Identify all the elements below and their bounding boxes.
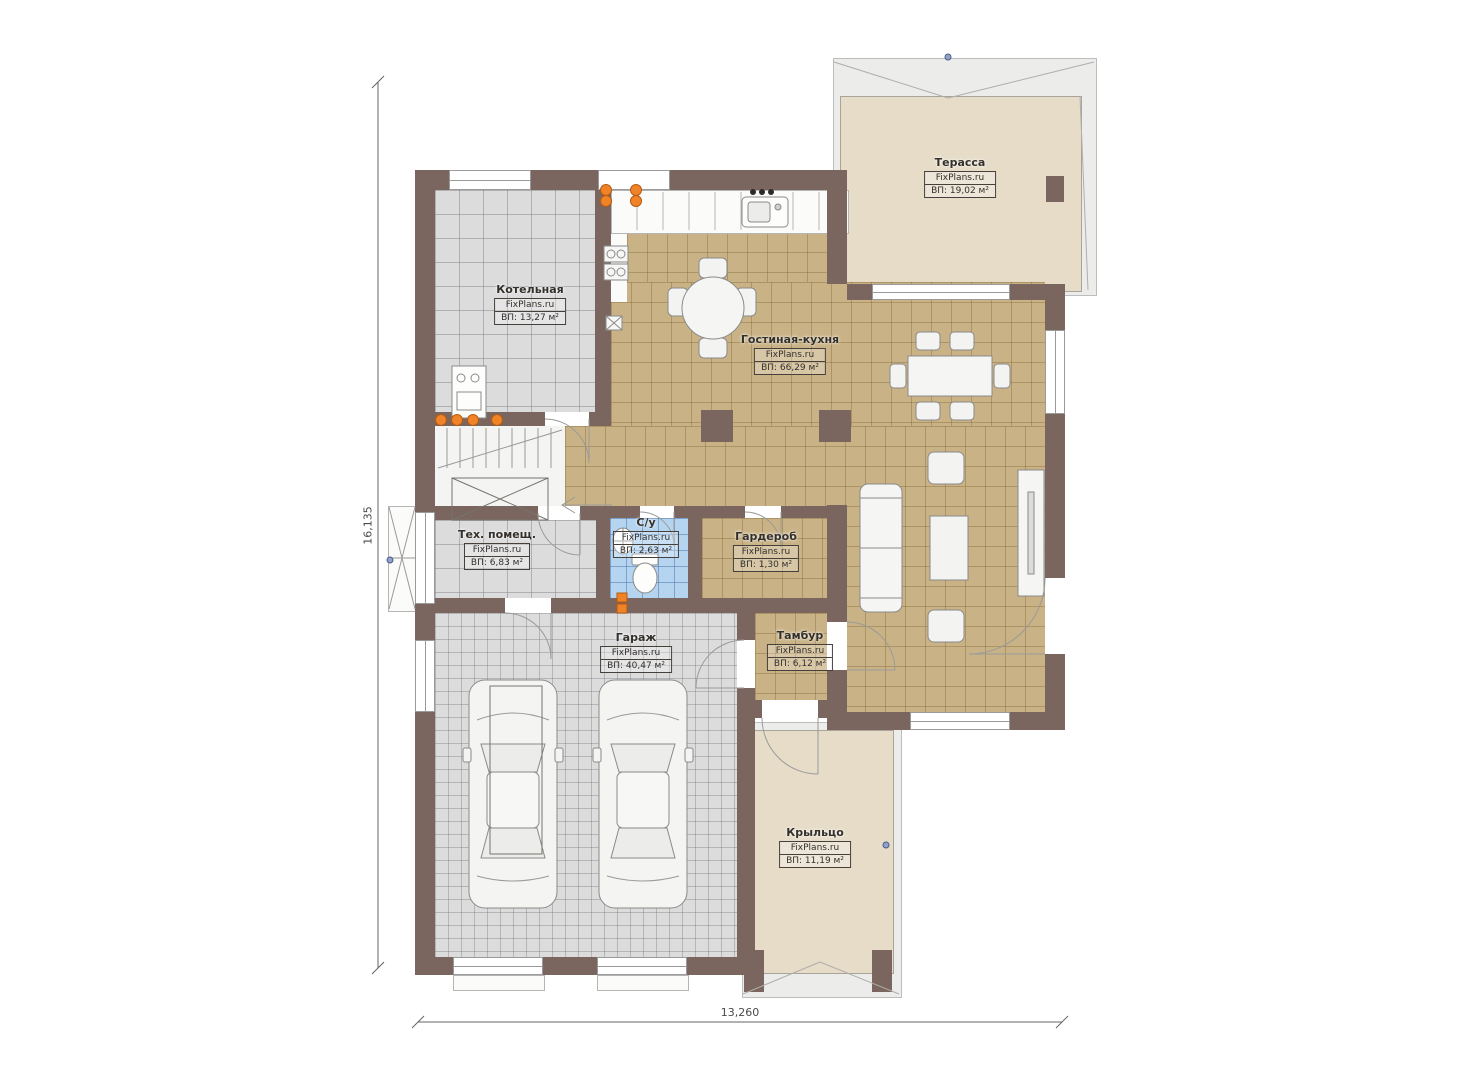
porch-post-right [872,950,892,992]
watermark-fixplans: FixPlans.ru [925,172,995,184]
watermark-fixplans: FixPlans.ru [601,647,671,659]
watermark-fixplans: FixPlans.ru [768,645,832,657]
room-name: Тамбур [767,629,833,642]
niche-kitchen-north [598,170,670,190]
wall-living-vestibule [827,505,847,730]
wall-northeast-vertical [827,170,847,284]
garage-door-left [453,957,543,975]
room-name: Терасса [924,156,996,169]
room-name: Котельная [494,283,566,296]
door-opening-entrance [762,700,818,718]
room-info-box: FixPlans.ru ВП: 19,02 м² [924,171,996,198]
kitchen-appliance-column [611,232,627,302]
watermark-fixplans: FixPlans.ru [465,544,529,556]
watermark-fixplans: FixPlans.ru [755,349,825,361]
room-info-box: FixPlans.ru ВП: 2,63 м² [613,531,679,558]
room-label-boiler: Котельная FixPlans.ru ВП: 13,27 м² [494,283,566,325]
garage-apron-right [597,975,689,991]
pillar-living-east [819,410,851,442]
room-info-box: FixPlans.ru ВП: 6,12 м² [767,644,833,671]
room-info-box: FixPlans.ru ВП: 1,30 м² [733,545,799,572]
kitchen-floor [627,232,847,282]
room-area: ВП: 2,63 м² [614,544,678,557]
room-name: С/у [613,516,679,529]
room-name: Гардероб [733,530,799,543]
watermark-fixplans: FixPlans.ru [734,546,798,558]
door-opening-garage-side [737,640,755,688]
room-name: Тех. помещ. [458,528,536,541]
room-name: Крыльцо [779,826,851,839]
floor-plan-canvas: Терасса FixPlans.ru ВП: 19,02 м² Котельн… [0,0,1474,1080]
room-area: ВП: 40,47 м² [601,659,671,672]
kitchen-counter-run [611,190,849,234]
pillar-living-west [701,410,733,442]
room-info-box: FixPlans.ru ВП: 40,47 м² [600,646,672,673]
room-label-vestibule: Тамбур FixPlans.ru ВП: 6,12 м² [767,629,833,671]
porch-post-left [744,950,764,992]
wall-bathroom-east [688,506,702,600]
room-info-box: FixPlans.ru ВП: 13,27 м² [494,298,566,325]
wall-bathroom-west [596,506,610,600]
living-floor-lower [845,426,1045,712]
window-living-south [910,712,1010,730]
dimension-vertical: 16,135 [362,494,375,558]
wall-boiler-east [595,190,611,426]
garage-apron-left [453,975,545,991]
window-living-east [1045,330,1065,414]
room-label-wardrobe: Гардероб FixPlans.ru ВП: 1,30 м² [733,530,799,572]
dimension-horizontal: 13,260 [710,1006,770,1019]
room-label-garage: Гараж FixPlans.ru ВП: 40,47 м² [600,631,672,673]
room-label-living-kitchen: Гостиная-кухня FixPlans.ru ВП: 66,29 м² [741,333,839,375]
watermark-fixplans: FixPlans.ru [495,299,565,311]
bay-window [388,506,418,612]
room-area: ВП: 11,19 м² [780,854,850,867]
window-living-terrace [872,284,1010,300]
room-area: ВП: 13,27 м² [495,311,565,324]
garage-floor [435,613,737,957]
room-info-box: FixPlans.ru ВП: 66,29 м² [754,348,826,375]
room-label-terrace: Терасса FixPlans.ru ВП: 19,02 м² [924,156,996,198]
window-tech-west [415,512,435,604]
room-label-porch: Крыльцо FixPlans.ru ВП: 11,19 м² [779,826,851,868]
room-area: ВП: 66,29 м² [755,361,825,374]
door-opening-terrace [1045,578,1065,654]
window-garage-west [415,640,435,712]
watermark-fixplans: FixPlans.ru [780,842,850,854]
door-opening-tech [538,506,580,520]
room-name: Гостиная-кухня [741,333,839,346]
room-label-tech: Тех. помещ. FixPlans.ru ВП: 6,83 м² [458,528,536,570]
room-area: ВП: 6,12 м² [768,657,832,670]
door-opening-garage-house [505,598,551,613]
room-area: ВП: 6,83 м² [465,556,529,569]
room-info-box: FixPlans.ru ВП: 6,83 м² [464,543,530,570]
room-label-bathroom: С/у FixPlans.ru ВП: 2,63 м² [613,516,679,558]
room-area: ВП: 1,30 м² [734,558,798,571]
room-area: ВП: 19,02 м² [925,184,995,197]
watermark-fixplans: FixPlans.ru [614,532,678,544]
wall-garage-north [435,598,837,613]
terrace-post [1046,176,1064,202]
room-name: Гараж [600,631,672,644]
garage-door-right [597,957,687,975]
window-boiler-north [449,170,531,190]
door-opening-wardrobe [745,506,781,518]
door-opening-boiler [545,412,589,426]
stairs-zone-floor [435,426,565,506]
room-info-box: FixPlans.ru ВП: 11,19 м² [779,841,851,868]
